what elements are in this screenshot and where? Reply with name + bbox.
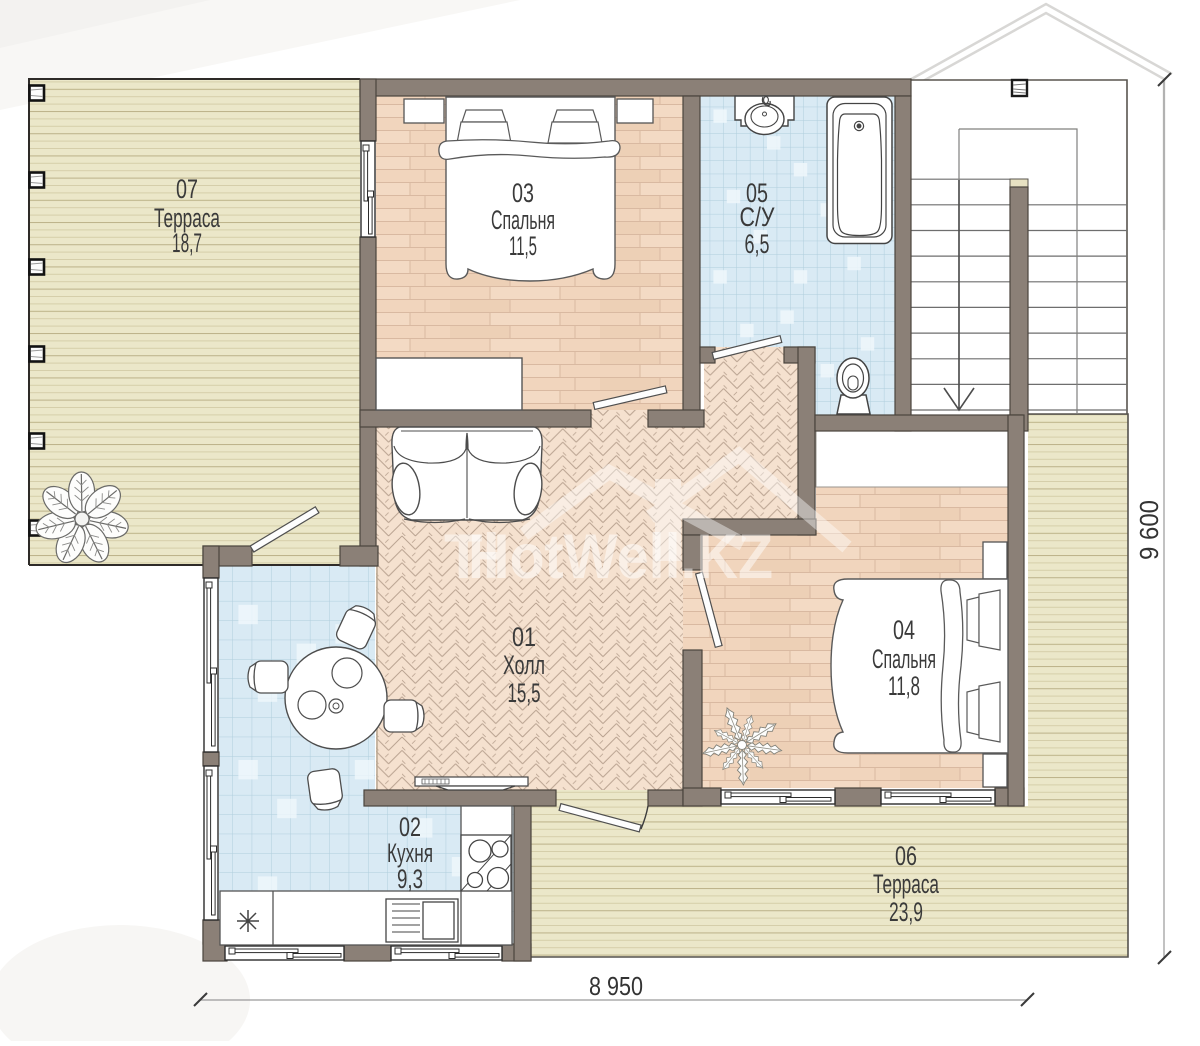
svg-text:9,3: 9,3 (397, 864, 423, 894)
svg-text:С/У: С/У (740, 202, 775, 232)
svg-text:Спальня: Спальня (872, 644, 936, 674)
svg-text:8 950: 8 950 (589, 971, 643, 1001)
svg-text:06: 06 (895, 841, 917, 871)
svg-text:11,5: 11,5 (509, 231, 537, 261)
svg-text:Терраса: Терраса (873, 869, 939, 899)
svg-text:23,9: 23,9 (889, 897, 923, 927)
svg-text:07: 07 (176, 174, 198, 204)
svg-text:Tl: Tl (444, 522, 500, 592)
svg-text:18,7: 18,7 (172, 228, 202, 258)
svg-text:HotWell.KZ: HotWell.KZ (468, 522, 773, 592)
svg-text:01: 01 (512, 622, 536, 652)
svg-text:04: 04 (893, 615, 915, 645)
svg-text:9 600: 9 600 (1134, 500, 1164, 560)
svg-text:15,5: 15,5 (508, 678, 541, 708)
svg-text:Холл: Холл (503, 650, 545, 680)
svg-text:03: 03 (512, 178, 534, 208)
svg-text:6,5: 6,5 (745, 229, 770, 259)
svg-text:11,8: 11,8 (888, 671, 920, 701)
